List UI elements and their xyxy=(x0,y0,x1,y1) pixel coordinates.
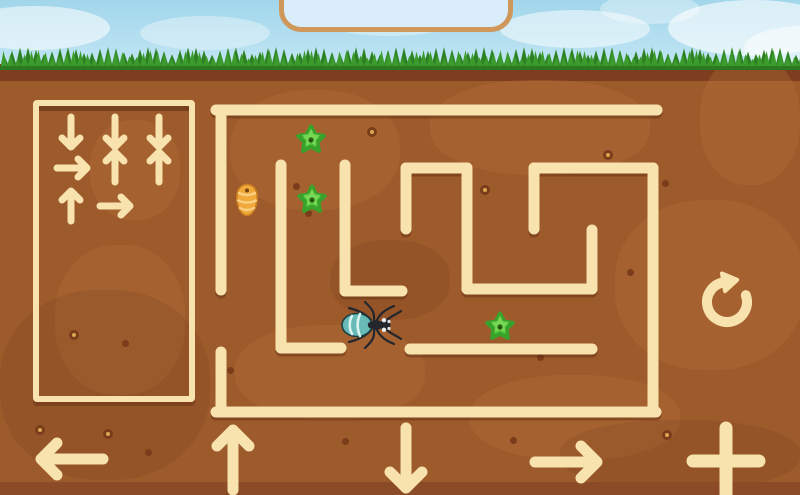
move-down-arrow-icon xyxy=(390,428,422,488)
star-collectible xyxy=(289,117,333,161)
move-up-button[interactable] xyxy=(187,414,279,495)
move-right-button[interactable] xyxy=(519,415,613,495)
command-arrow-down xyxy=(150,117,168,147)
command-arrow-right xyxy=(100,197,130,215)
plus-icon xyxy=(693,428,759,494)
command-arrow-up xyxy=(150,152,168,182)
move-left-button[interactable] xyxy=(25,412,119,495)
move-left-arrow-icon xyxy=(41,443,103,475)
command-arrow-down xyxy=(62,117,80,147)
add-command-button[interactable] xyxy=(681,416,771,495)
move-right-arrow-icon xyxy=(535,446,597,478)
star-collectible xyxy=(478,304,522,348)
command-arrow-down xyxy=(106,117,124,147)
star-collectible xyxy=(290,177,334,221)
game-stage xyxy=(0,0,800,495)
command-arrow-up xyxy=(106,152,124,182)
egg-collectible xyxy=(227,180,267,220)
redo-button[interactable] xyxy=(691,266,763,338)
move-down-button[interactable] xyxy=(360,412,452,495)
move-up-arrow-icon xyxy=(217,430,249,490)
command-arrow-right xyxy=(57,159,87,177)
ant-character xyxy=(334,287,410,363)
command-arrow-up xyxy=(62,191,80,221)
